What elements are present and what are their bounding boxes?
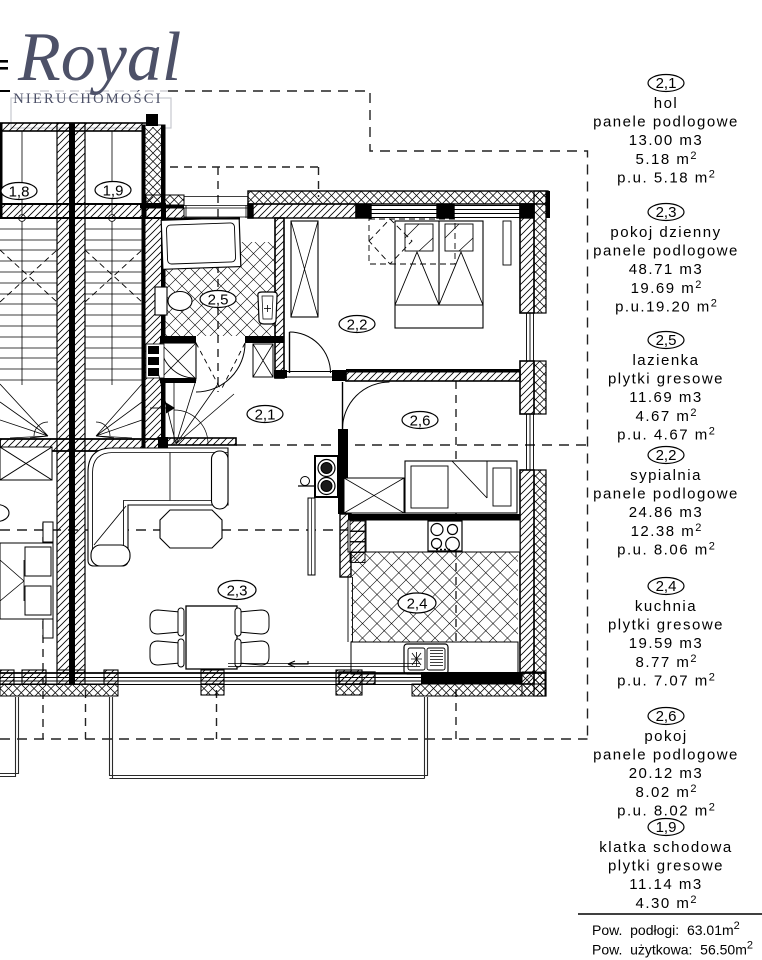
svg-text:1,9: 1,9 xyxy=(103,182,124,199)
svg-text:p.u. 7.07 m2: p.u. 7.07 m2 xyxy=(617,671,715,689)
svg-text:2,1: 2,1 xyxy=(255,406,276,423)
svg-text:11.69 m3: 11.69 m3 xyxy=(629,389,702,406)
svg-text:2,6: 2,6 xyxy=(410,412,431,429)
svg-text:plytki gresowe: plytki gresowe xyxy=(608,858,724,875)
svg-text:13.00 m3: 13.00 m3 xyxy=(629,132,704,149)
svg-text:lazienka: lazienka xyxy=(632,352,699,369)
svg-text:11.14 m3: 11.14 m3 xyxy=(629,876,702,893)
svg-text:1,8: 1,8 xyxy=(9,183,30,200)
svg-text:plytki gresowe: plytki gresowe xyxy=(608,371,724,388)
svg-text:p.u. 8.02 m2: p.u. 8.02 m2 xyxy=(617,801,715,819)
svg-text:panele podlogowe: panele podlogowe xyxy=(593,114,739,131)
svg-text:2,1: 2,1 xyxy=(656,75,677,92)
svg-text:2,3: 2,3 xyxy=(656,204,677,221)
svg-text:2,6: 2,6 xyxy=(656,708,677,725)
svg-text:2,3: 2,3 xyxy=(227,582,248,599)
svg-text:sypialnia: sypialnia xyxy=(630,467,702,484)
svg-text:5.18 m2: 5.18 m2 xyxy=(636,150,697,168)
svg-text:panele podlogowe: panele podlogowe xyxy=(593,243,739,260)
svg-text:pokoj: pokoj xyxy=(644,728,687,745)
svg-text:p.u.19.20 m2: p.u.19.20 m2 xyxy=(615,297,717,315)
svg-text:2,4: 2,4 xyxy=(656,578,677,595)
svg-text:8.02 m2: 8.02 m2 xyxy=(636,783,697,801)
svg-text:19.59 m3: 19.59 m3 xyxy=(629,635,704,652)
svg-text:48.71 m3: 48.71 m3 xyxy=(629,261,704,278)
svg-text:NIERUCHOMOŚCI: NIERUCHOMOŚCI xyxy=(13,90,162,107)
svg-text:Royal: Royal xyxy=(17,19,181,96)
svg-text:19.69 m2: 19.69 m2 xyxy=(631,279,702,297)
svg-text:4.30 m2: 4.30 m2 xyxy=(636,894,697,912)
svg-text:2,4: 2,4 xyxy=(407,595,428,612)
svg-text:4.67 m2: 4.67 m2 xyxy=(636,407,697,425)
svg-text:p.u. 4.67 m2: p.u. 4.67 m2 xyxy=(617,425,715,443)
svg-text:hol: hol xyxy=(654,95,679,112)
svg-text:kuchnia: kuchnia xyxy=(635,598,697,615)
svg-text:panele podlogowe: panele podlogowe xyxy=(593,747,739,764)
svg-text:2,2: 2,2 xyxy=(347,316,368,333)
svg-text:2,5: 2,5 xyxy=(656,332,677,349)
svg-text:pokoj dzienny: pokoj dzienny xyxy=(610,224,721,241)
svg-text:8.77 m2: 8.77 m2 xyxy=(636,653,697,671)
svg-text:klatka schodowa: klatka schodowa xyxy=(599,839,732,856)
svg-text:2,5: 2,5 xyxy=(208,291,229,308)
svg-text:1,9: 1,9 xyxy=(656,819,677,836)
svg-text:p.u. 5.18 m2: p.u. 5.18 m2 xyxy=(617,168,715,186)
svg-text:24.86 m3: 24.86 m3 xyxy=(629,504,704,521)
svg-text:20.12 m3: 20.12 m3 xyxy=(629,765,704,782)
svg-text:Pow. podłogi: 63.01m2: Pow. podłogi: 63.01m2 xyxy=(592,920,740,938)
svg-text:plytki gresowe: plytki gresowe xyxy=(608,617,724,634)
svg-text:Pow. użytkowa: 56.50m2: Pow. użytkowa: 56.50m2 xyxy=(592,940,753,958)
svg-text:panele podlogowe: panele podlogowe xyxy=(593,486,739,503)
svg-text:12.38 m2: 12.38 m2 xyxy=(631,522,702,540)
svg-text:2,2: 2,2 xyxy=(656,447,677,464)
svg-text:p.u. 8.06 m2: p.u. 8.06 m2 xyxy=(617,540,715,558)
